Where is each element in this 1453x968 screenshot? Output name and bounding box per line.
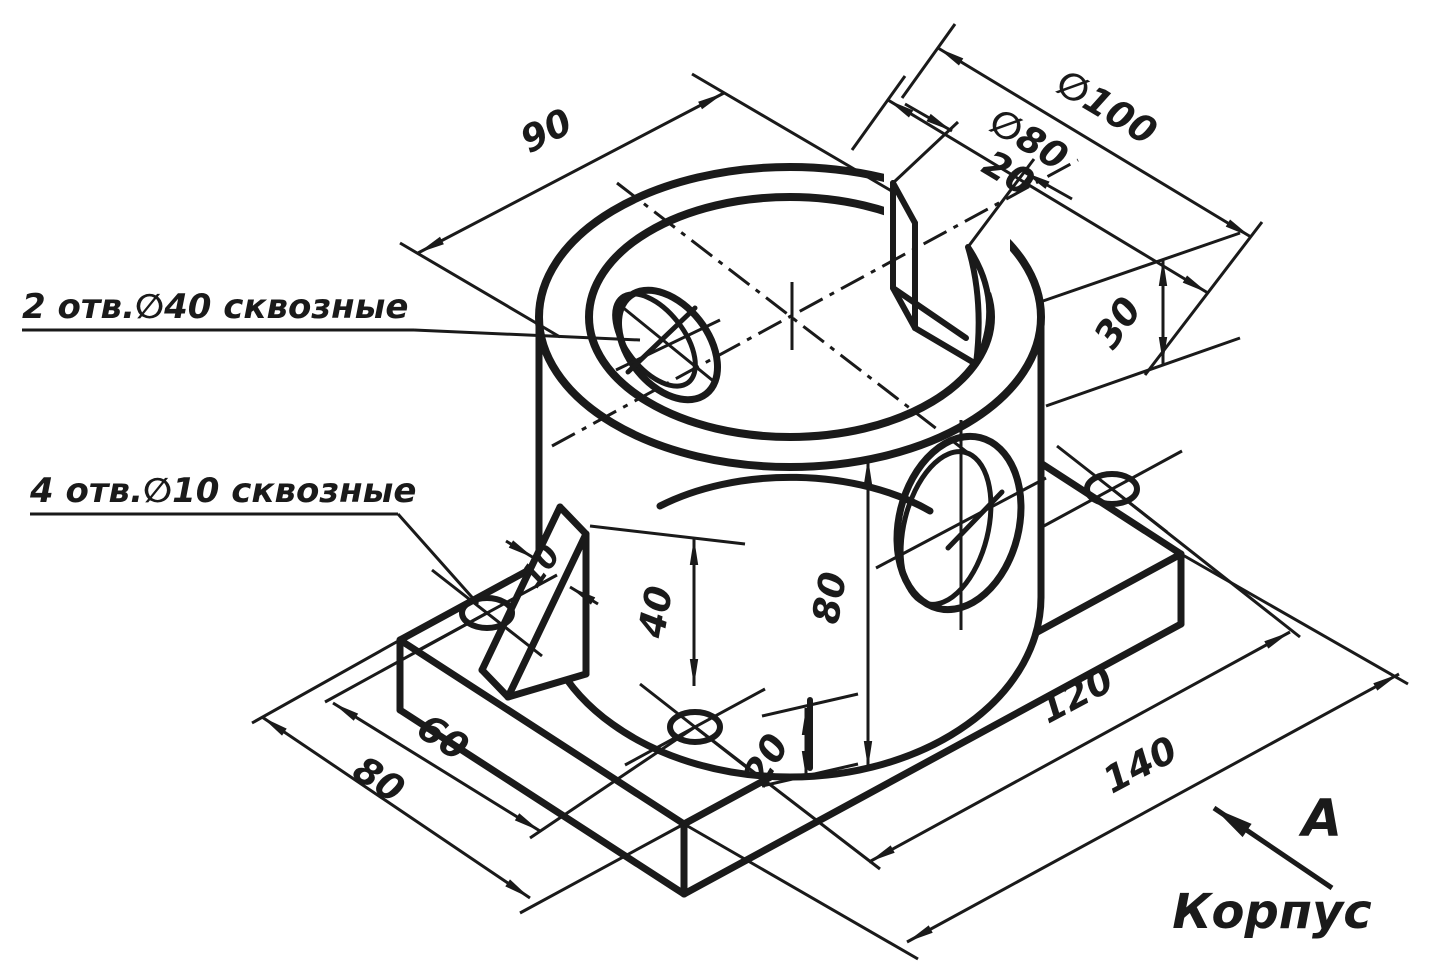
drawing-sheet: 90 ∅100 ∅80 20 30 (0, 0, 1453, 968)
view-direction: A (1214, 789, 1342, 888)
dim-80b-line (262, 717, 530, 898)
dim-dia100-ext-left (902, 24, 955, 98)
dim-60-label: 60 (410, 705, 477, 769)
dim-30-ext-bottom (1046, 338, 1240, 406)
dim-80h-label: 80 (804, 569, 855, 627)
part-title: Корпус (1172, 884, 1371, 940)
dim-120-ext-right (1112, 489, 1300, 637)
dim-80b-ext-left (252, 640, 400, 723)
isometric-technical-drawing: 90 ∅100 ∅80 20 30 (0, 0, 1453, 968)
dim-slot20-arrow-left (905, 104, 952, 131)
dim-dia80-ext-left (852, 76, 905, 150)
dim-90-ext-left (400, 243, 560, 337)
note-holes-d40: 2 отв.∅40 сквозные (22, 287, 408, 327)
dim-30-label: 30 (1085, 289, 1150, 356)
dim-40-label: 40 (630, 583, 681, 642)
dim-140-ext-left (684, 824, 918, 959)
dim-90-label: 90 (514, 100, 579, 162)
dim-60-ext-left (325, 613, 487, 702)
dim-120-label: 120 (1032, 658, 1120, 732)
dim-80b-label: 80 (346, 747, 413, 811)
view-a-label: A (1298, 789, 1342, 849)
note-holes-d10: 4 отв.∅10 сквозные (29, 471, 416, 511)
dim-140-ext-right (1181, 554, 1408, 684)
dim-slot-30: 30 (1043, 233, 1240, 406)
dim-140-label: 140 (1096, 728, 1184, 802)
note-holes-d10-leader (398, 514, 478, 604)
